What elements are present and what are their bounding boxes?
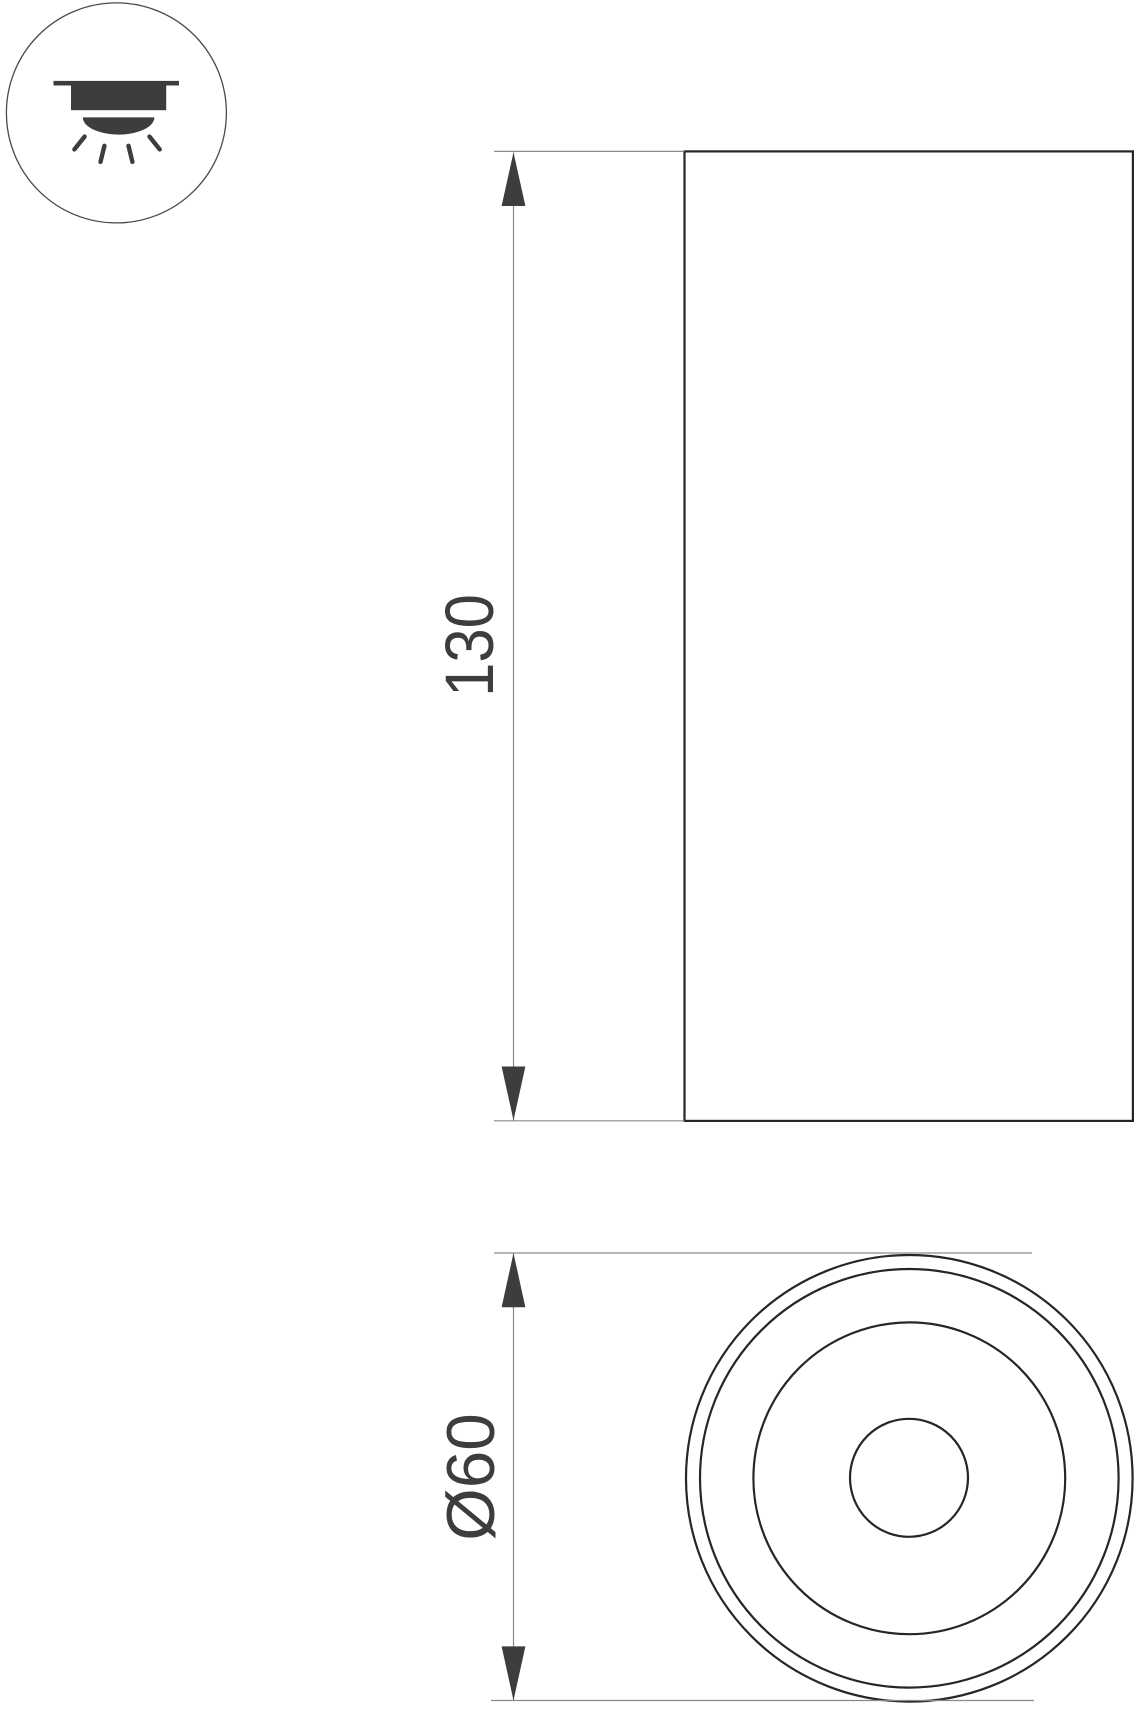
svg-text:Ø60: Ø60: [434, 1413, 509, 1541]
svg-text:130: 130: [431, 594, 508, 697]
